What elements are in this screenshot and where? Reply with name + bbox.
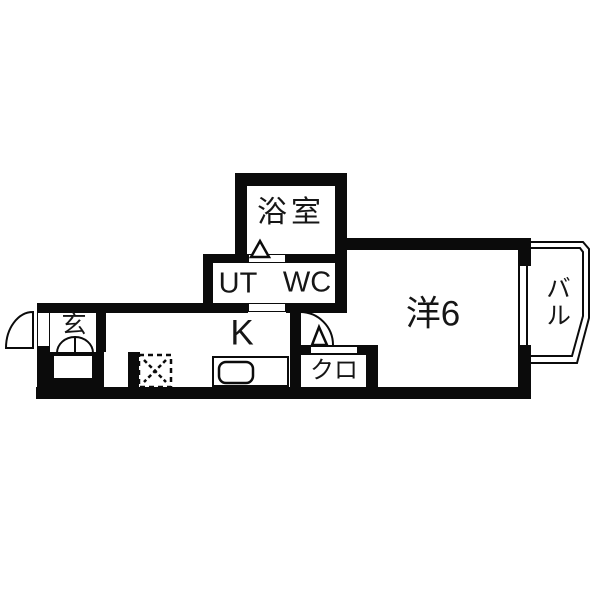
- room-label-toilet: WC: [283, 269, 331, 298]
- wall-segment: [235, 173, 247, 263]
- entrance-door-swing-arc: [6, 312, 33, 348]
- wall-segment: [235, 173, 347, 186]
- bathroom-door-opening: [248, 254, 286, 263]
- room-label-entrance: 玄: [61, 313, 86, 338]
- floorplan-canvas: 浴室 UT WC 玄 K クロ 洋6 バル: [0, 0, 600, 600]
- utility-door-opening: [248, 303, 286, 312]
- shoe-cabinet: [54, 356, 92, 378]
- wall-segment: [335, 238, 531, 250]
- kitchen-sink-counter: [213, 357, 288, 386]
- closet-door-opening: [310, 346, 358, 354]
- entrance-double-door-right: [75, 337, 93, 353]
- entrance-double-door-left: [57, 337, 75, 353]
- room-label-kitchen: K: [230, 316, 253, 351]
- room-label-closet: クロ: [310, 359, 358, 383]
- entrance-door-opening: [37, 312, 50, 347]
- wall-segment: [203, 255, 213, 313]
- room-label-balcony: バル: [544, 275, 569, 329]
- wall-segment: [518, 345, 531, 388]
- room-door-leaf: [312, 327, 327, 345]
- room-door-swing-arc: [300, 312, 333, 345]
- refrigerator-space: [104, 352, 128, 387]
- room-label-utility: UT: [219, 270, 258, 299]
- fixtures-layer: [0, 0, 600, 600]
- window-glass-line: [518, 266, 520, 345]
- wall-segment: [36, 387, 531, 399]
- room-label-bathroom: 浴室: [257, 198, 325, 228]
- washer-space-dashed: [139, 355, 171, 387]
- window-glass-line: [526, 266, 528, 345]
- wall-segment: [518, 238, 531, 266]
- room-label-western-room: 洋6: [406, 297, 460, 332]
- wall-segment: [128, 352, 140, 387]
- wall-segment: [366, 345, 378, 387]
